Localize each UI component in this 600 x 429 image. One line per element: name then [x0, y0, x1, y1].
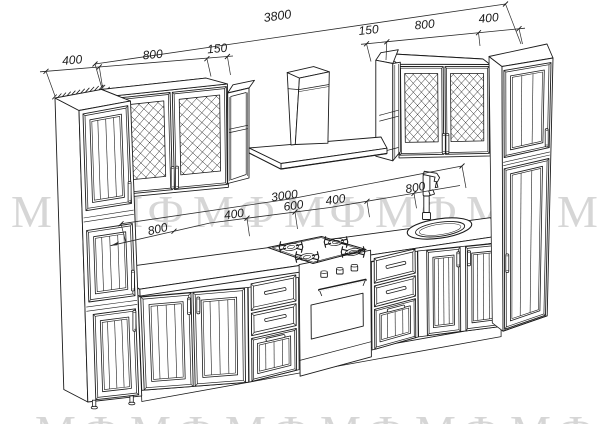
svg-text:М: М	[35, 406, 76, 424]
svg-text:М: М	[11, 186, 52, 237]
svg-text:М: М	[557, 186, 598, 237]
svg-text:Ф: Ф	[83, 406, 119, 424]
svg-text:Ф: Ф	[178, 406, 214, 424]
svg-text:400: 400	[325, 191, 347, 208]
svg-text:150: 150	[207, 41, 228, 57]
svg-text:Ф: Ф	[368, 406, 404, 424]
svg-text:800: 800	[414, 16, 436, 32]
svg-text:Ф: Ф	[558, 406, 594, 424]
svg-text:Ф: Ф	[239, 186, 275, 237]
svg-text:800: 800	[142, 47, 163, 63]
svg-text:М: М	[415, 406, 456, 424]
svg-text:М: М	[510, 406, 551, 424]
svg-text:400: 400	[478, 10, 500, 26]
svg-text:Ф: Ф	[463, 406, 499, 424]
svg-text:М: М	[130, 406, 171, 424]
svg-text:М: М	[225, 406, 266, 424]
svg-text:М: М	[320, 406, 361, 424]
svg-text:Ф: Ф	[273, 406, 309, 424]
svg-text:400: 400	[62, 52, 83, 68]
svg-text:400: 400	[223, 206, 245, 223]
svg-text:150: 150	[358, 22, 380, 38]
svg-text:600: 600	[283, 197, 305, 214]
